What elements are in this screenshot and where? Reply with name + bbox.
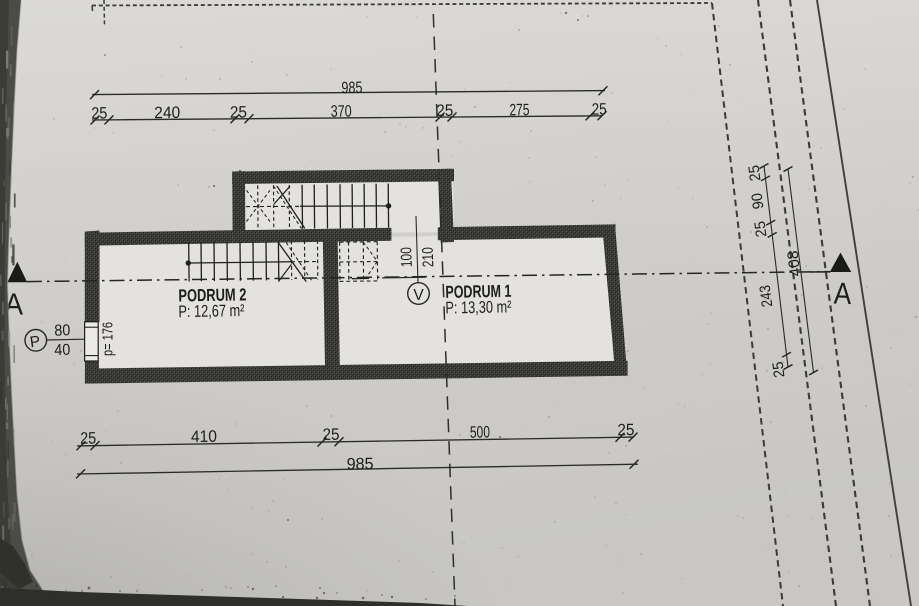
- svg-text:500: 500: [470, 422, 490, 441]
- svg-text:25: 25: [230, 102, 247, 121]
- svg-text:25: 25: [436, 101, 453, 120]
- svg-text:25: 25: [770, 361, 789, 379]
- svg-text:P: 13,30 m²: P: 13,30 m²: [445, 297, 512, 317]
- svg-text:A: A: [833, 277, 852, 312]
- svg-text:25: 25: [80, 429, 96, 448]
- svg-text:243: 243: [757, 284, 777, 308]
- svg-text:90: 90: [749, 192, 768, 210]
- svg-text:240: 240: [154, 103, 180, 122]
- svg-text:25: 25: [617, 420, 634, 439]
- svg-text:25: 25: [322, 425, 339, 444]
- svg-text:P: 12,67 m²: P: 12,67 m²: [178, 301, 245, 321]
- svg-text:370: 370: [330, 102, 351, 121]
- svg-text:25: 25: [592, 99, 607, 118]
- svg-text:408: 408: [785, 250, 805, 278]
- svg-text:p= 176: p= 176: [101, 322, 117, 356]
- svg-text:100: 100: [398, 247, 416, 268]
- svg-text:25: 25: [752, 220, 771, 238]
- svg-text:80: 80: [54, 322, 71, 340]
- svg-text:V: V: [413, 287, 424, 304]
- svg-text:40: 40: [54, 342, 71, 360]
- svg-text:210: 210: [420, 247, 438, 268]
- svg-text:275: 275: [509, 100, 529, 119]
- svg-text:985: 985: [346, 454, 373, 473]
- svg-text:410: 410: [191, 427, 217, 446]
- svg-text:25: 25: [746, 164, 765, 182]
- svg-text:25: 25: [91, 104, 107, 123]
- svg-text:985: 985: [341, 78, 362, 97]
